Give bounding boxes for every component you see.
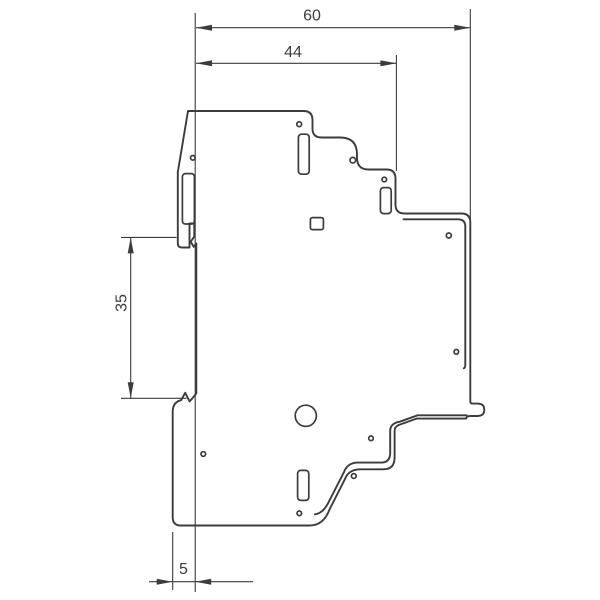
top-slot [298, 134, 309, 174]
din-clip-slot [182, 174, 194, 224]
arrowhead-right-icon [157, 579, 173, 585]
rivet-hole [454, 350, 459, 355]
right-slot [380, 188, 391, 214]
arrowhead-left-icon [196, 60, 212, 66]
rivet-hole [350, 157, 356, 163]
rivet-hole [297, 122, 302, 127]
arrowhead-up-icon [128, 237, 134, 253]
dimension-35: 35 [114, 237, 134, 398]
dimension-5: 5 [149, 561, 253, 585]
dimension-5-label: 5 [179, 561, 188, 578]
dimension-60: 60 [196, 8, 470, 31]
center-hole [295, 405, 316, 426]
inner-parting-line-lower [315, 415, 467, 514]
bottom-slot [298, 470, 309, 500]
inner-parting-line-upper [404, 219, 466, 368]
dimension-44: 44 [196, 44, 396, 66]
rivet-hole [382, 177, 387, 182]
rivet-hole [191, 156, 196, 161]
rivet-hole [351, 474, 356, 479]
rivet-hole [446, 233, 451, 238]
device-body [173, 111, 485, 526]
technical-drawing-page: 60 44 35 5 [0, 0, 600, 600]
arrowhead-left-icon [196, 25, 212, 31]
body-features [182, 122, 458, 516]
device-profile-outline [173, 111, 485, 526]
rivet-hole [297, 511, 302, 516]
arrowhead-left-icon [195, 579, 211, 585]
din-device-side-profile-drawing: 60 44 35 5 [0, 0, 600, 600]
arrowhead-right-icon [380, 60, 396, 66]
arrowhead-right-icon [454, 25, 470, 31]
rivet-hole [369, 436, 374, 441]
arrowhead-down-icon [128, 382, 134, 398]
toggle-pocket [310, 218, 323, 230]
rivet-hole [201, 452, 206, 457]
dimension-60-label: 60 [303, 8, 321, 25]
dimension-44-label: 44 [284, 44, 302, 61]
dimension-35-label: 35 [114, 294, 131, 312]
